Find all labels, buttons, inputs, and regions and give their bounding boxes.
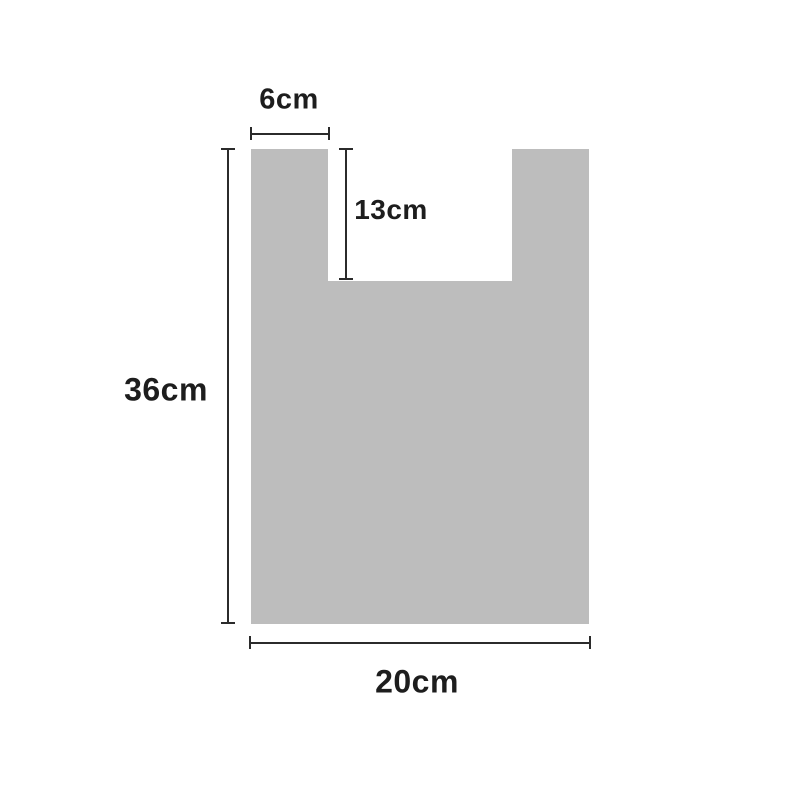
dimension-line-cutout-depth [339, 148, 353, 280]
dimension-label-cutout-depth: 13cm [354, 194, 428, 226]
dimension-label-handle-width: 6cm [259, 84, 319, 117]
dimension-label-bag-height: 36cm [124, 372, 208, 409]
dimension-line-bag-width [249, 636, 591, 649]
dimension-line-handle-width [250, 127, 330, 140]
dimension-label-bag-width: 20cm [375, 664, 459, 701]
diagram-canvas: 6cm 13cm 36cm 20cm [0, 0, 800, 800]
dimension-line-bag-height [221, 148, 235, 624]
